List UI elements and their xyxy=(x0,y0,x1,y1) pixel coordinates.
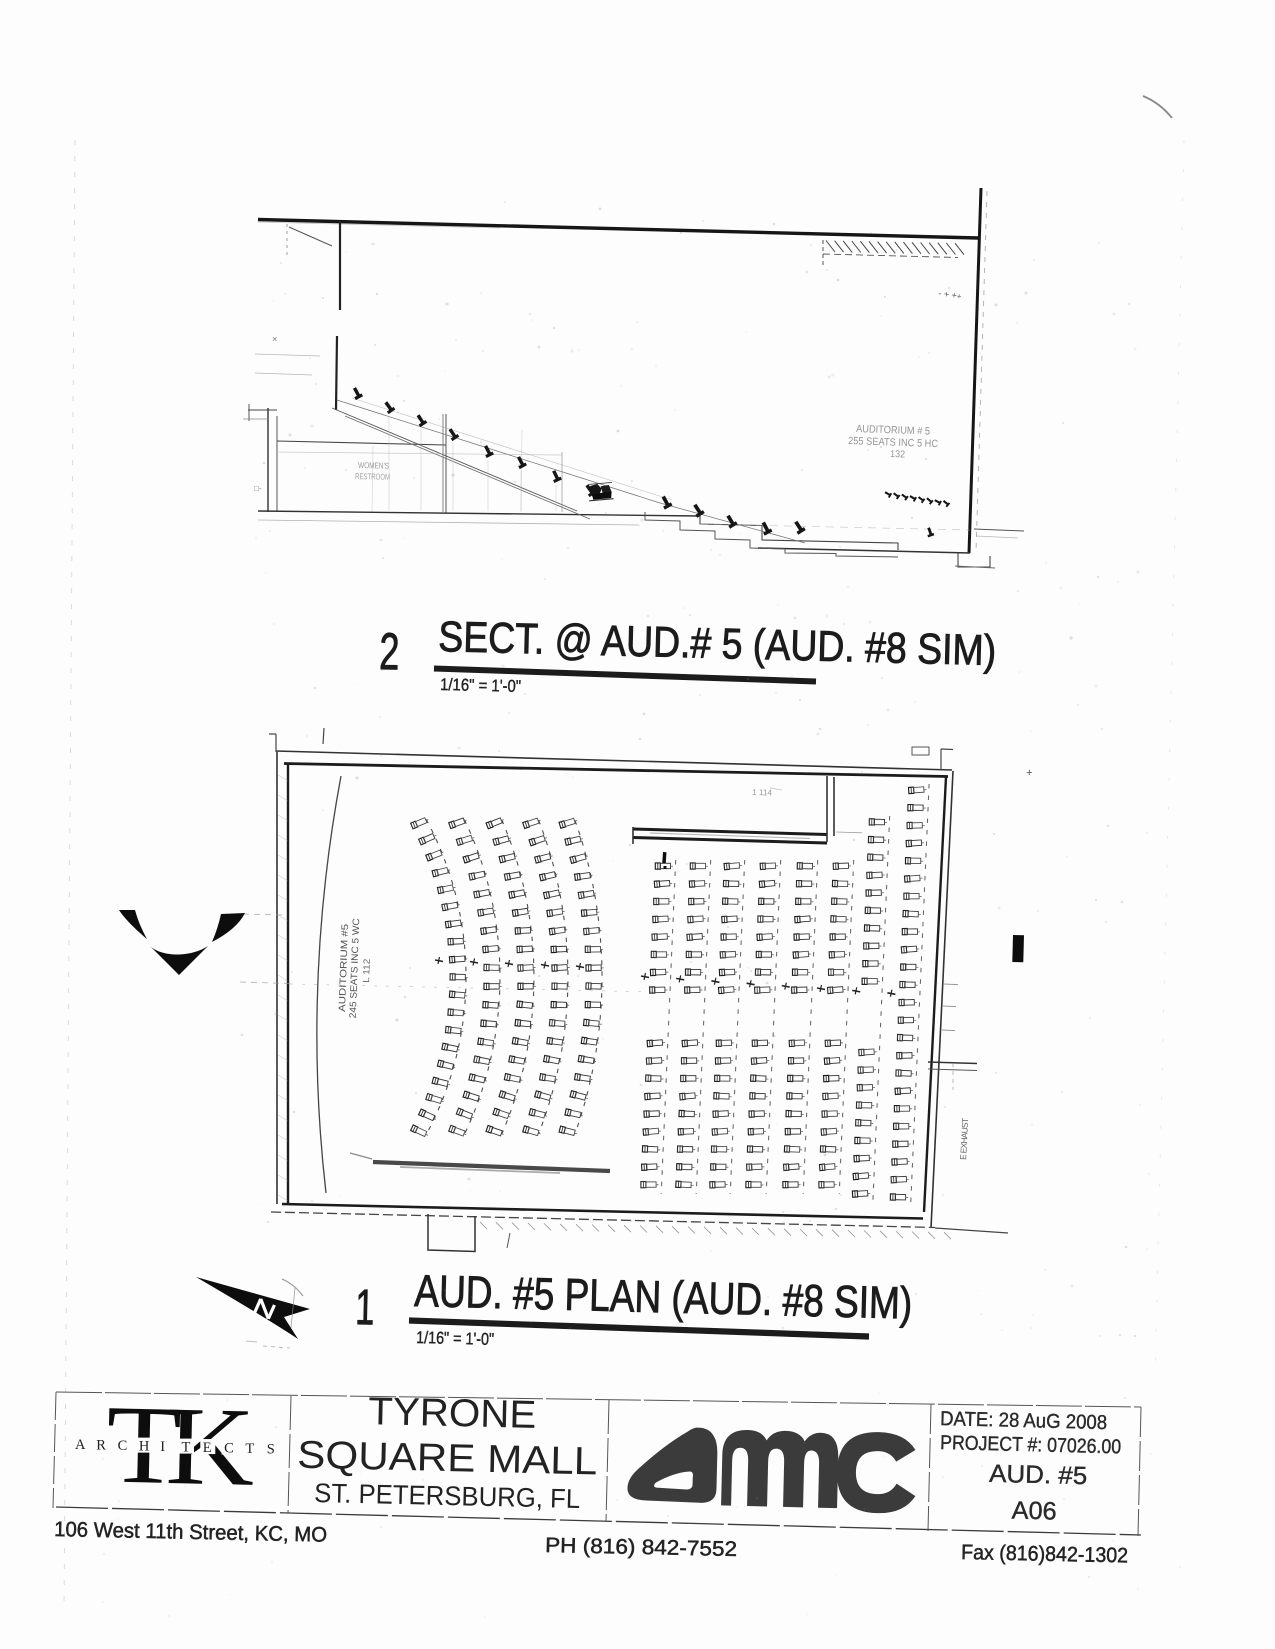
svg-text:E EXHAUST: E EXHAUST xyxy=(958,1118,970,1160)
svg-text:S: S xyxy=(267,1441,275,1457)
svg-text:2: 2 xyxy=(379,623,400,681)
svg-text:132: 132 xyxy=(890,449,906,461)
svg-text:1: 1 xyxy=(355,1279,375,1335)
svg-text:PH (816) 842-7552: PH (816) 842-7552 xyxy=(545,1534,737,1561)
svg-text:DATE: 28 AuG 2008: DATE: 28 AuG 2008 xyxy=(940,1408,1107,1434)
svg-text:TYRONE: TYRONE xyxy=(368,1390,537,1437)
svg-text:255 SEATS INC 5 HC: 255 SEATS INC 5 HC xyxy=(848,435,939,450)
svg-text:A06: A06 xyxy=(1011,1496,1057,1525)
svg-text:E: E xyxy=(203,1440,212,1456)
svg-text:1/16" = 1'-0": 1/16" = 1'-0" xyxy=(440,675,521,696)
svg-text:I: I xyxy=(160,1439,165,1455)
svg-text:□-: □- xyxy=(254,484,262,493)
svg-text:T: T xyxy=(245,1441,254,1457)
svg-text:+: + xyxy=(1026,767,1033,779)
svg-text:PROJECT #: 07026.00: PROJECT #: 07026.00 xyxy=(940,1432,1121,1458)
svg-text:C: C xyxy=(118,1438,128,1454)
svg-text:RESTROOM: RESTROOM xyxy=(355,471,390,482)
svg-text:×: × xyxy=(272,334,277,344)
svg-text:245 SEATS INC 5 WC: 245 SEATS INC 5 WC xyxy=(348,918,362,1018)
svg-text:C: C xyxy=(224,1440,234,1456)
svg-text:AUD. #5 PLAN (AUD. #8 SIM): AUD. #5 PLAN (AUD. #8 SIM) xyxy=(414,1265,913,1329)
svg-text:SECT. @ AUD.# 5 (AUD. #8 SIM): SECT. @ AUD.# 5 (AUD. #8 SIM) xyxy=(438,613,997,675)
svg-text:H: H xyxy=(139,1438,150,1454)
svg-text:AUD. #5: AUD. #5 xyxy=(989,1460,1088,1490)
svg-text:SQUARE MALL: SQUARE MALL xyxy=(297,1434,598,1484)
svg-text:L 112: L 112 xyxy=(361,959,372,983)
svg-text:T: T xyxy=(182,1439,191,1455)
svg-text:Fax (816)842-1302: Fax (816)842-1302 xyxy=(961,1541,1128,1567)
svg-text:WOMEN'S: WOMEN'S xyxy=(358,460,389,471)
svg-text:106 West 11th Street, KC, MO: 106 West 11th Street, KC, MO xyxy=(54,1518,327,1547)
svg-text:A: A xyxy=(75,1437,86,1453)
svg-text:- + ++: - + ++ xyxy=(938,288,963,301)
svg-text:1/16" = 1'-0": 1/16" = 1'-0" xyxy=(416,1328,494,1349)
svg-text:ST. PETERSBURG, FL: ST. PETERSBURG, FL xyxy=(314,1478,581,1514)
svg-text:1 114: 1 114 xyxy=(752,787,773,797)
svg-text:R: R xyxy=(96,1438,106,1454)
